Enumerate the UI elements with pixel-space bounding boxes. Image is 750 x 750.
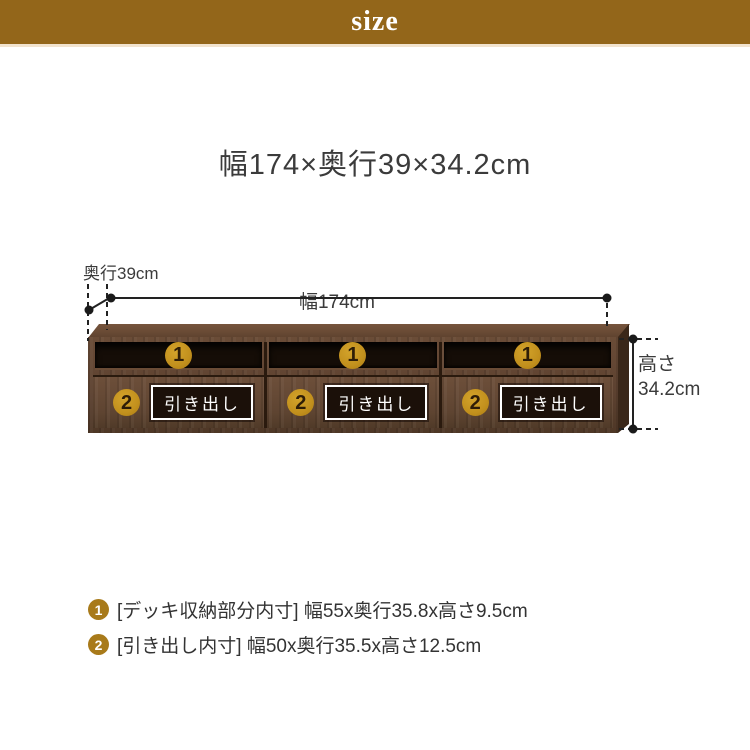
drawer-1: 2 引き出し bbox=[93, 375, 264, 428]
header-bar: size bbox=[0, 0, 750, 47]
legend-item-drawer: 2 [引き出し内寸] 幅50x奥行35.5x高さ12.5cm bbox=[88, 631, 481, 658]
legend-text-drawer: [引き出し内寸] 幅50x奥行35.5x高さ12.5cm bbox=[117, 631, 481, 658]
drawer-badge-1: 2 bbox=[113, 389, 140, 416]
page-title: 幅174×奥行39×34.2cm bbox=[0, 141, 750, 183]
legend-item-deck: 1 [デッキ収納部分内寸] 幅55x奥行35.8x高さ9.5cm bbox=[88, 596, 528, 623]
width-dot-left bbox=[107, 294, 116, 303]
deck-compartment-3: 1 bbox=[444, 342, 611, 370]
drawer-badge-3: 2 bbox=[462, 389, 489, 416]
size-heading: size bbox=[351, 6, 399, 38]
legend-text-deck: [デッキ収納部分内寸] 幅55x奥行35.8x高さ9.5cm bbox=[117, 596, 528, 623]
height-label-line2: 34.2cm bbox=[638, 377, 700, 402]
cabinet-section-3: 1 2 引き出し bbox=[439, 342, 613, 428]
depth-dot-left bbox=[85, 306, 94, 315]
compartment-badge-1: 1 bbox=[165, 342, 192, 369]
cabinet-section-1: 1 2 引き出し bbox=[93, 342, 264, 428]
drawer-label-2: 引き出し bbox=[325, 385, 427, 420]
compartment-badge-3: 1 bbox=[514, 342, 541, 369]
legend-badge-2: 2 bbox=[88, 634, 109, 655]
depth-measurement-label: 奥行39cm bbox=[83, 259, 159, 284]
deck-compartment-2: 1 bbox=[269, 342, 436, 370]
cabinet-sections: 1 2 引き出し 1 2 引き出し 1 2 引 bbox=[93, 342, 613, 428]
width-dot-right bbox=[603, 294, 612, 303]
compartment-badge-2: 1 bbox=[339, 342, 366, 369]
legend-badge-1: 1 bbox=[88, 599, 109, 620]
cabinet-top-surface bbox=[88, 322, 630, 338]
height-dot-top bbox=[629, 335, 638, 344]
cabinet-section-2: 1 2 引き出し bbox=[264, 342, 438, 428]
tv-cabinet: 1 2 引き出し 1 2 引き出し 1 2 引 bbox=[88, 337, 618, 433]
drawer-label-1: 引き出し bbox=[151, 385, 253, 420]
deck-compartment-1: 1 bbox=[95, 342, 262, 370]
height-dot-bottom bbox=[629, 425, 638, 434]
drawer-label-3: 引き出し bbox=[500, 385, 602, 420]
height-measurement-label: 高さ 34.2cm bbox=[638, 352, 700, 402]
height-label-line1: 高さ bbox=[638, 352, 700, 377]
depth-line bbox=[89, 297, 111, 310]
drawer-badge-2: 2 bbox=[287, 389, 314, 416]
drawer-3: 2 引き出し bbox=[442, 375, 613, 428]
width-measurement-label: 幅174cm bbox=[289, 287, 385, 314]
cabinet-right-side bbox=[618, 324, 629, 433]
drawer-2: 2 引き出し bbox=[267, 375, 438, 428]
